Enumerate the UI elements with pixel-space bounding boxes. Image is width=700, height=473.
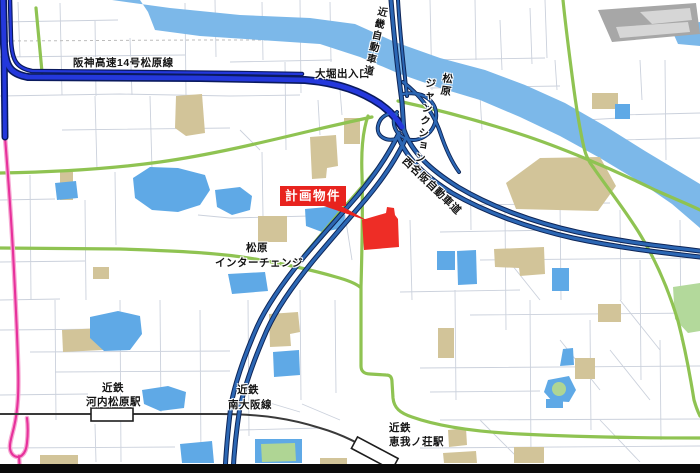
kintetsu-eganosho-label-line1: 近鉄 — [389, 422, 411, 434]
kintetsu-kawachi-label-line2: 河内松原駅 — [86, 396, 141, 408]
park-areas — [673, 283, 700, 333]
minami-osaka-line-label-line2: 南大阪線 — [228, 399, 272, 411]
matsubara-ic-label-line1: 松原 — [246, 242, 268, 254]
minami-osaka-line-label-line1: 近鉄 — [237, 384, 259, 396]
property-location-map: 阪神高速14号松原線大堀出入口近畿自動車道松原ジャンクション西名阪自動車道松原イ… — [0, 0, 700, 473]
hanshin-route-label: 阪神高速14号松原線 — [73, 57, 174, 69]
kintetsu-eganosho-label-line2: 恵我ノ荘駅 — [389, 436, 444, 448]
bottom-black-bar — [0, 464, 700, 473]
kintetsu-kawachi-label-line1: 近鉄 — [102, 382, 124, 394]
ponds — [55, 104, 630, 463]
matsubara-ic-label-line2: インターチェンジ — [215, 257, 303, 269]
property-callout: 計画物件 — [280, 186, 346, 206]
pink-route — [5, 137, 28, 473]
